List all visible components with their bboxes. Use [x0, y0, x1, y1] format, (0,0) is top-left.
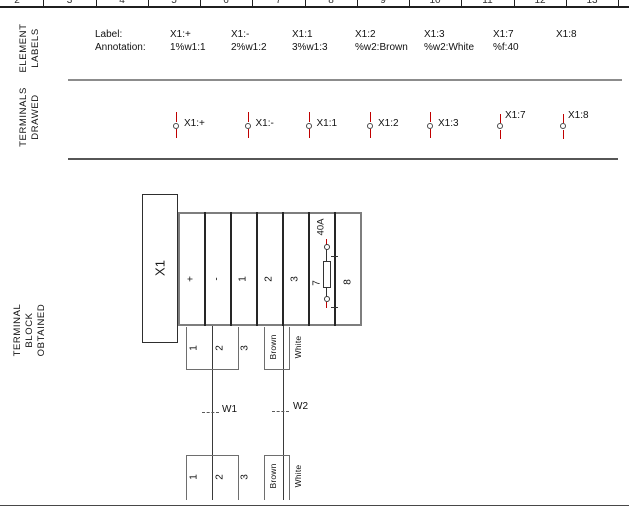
ruler-tick: [252, 0, 253, 8]
wire-label: 2: [215, 345, 226, 351]
terminal-label: X1:+: [184, 118, 205, 129]
row-header-element-labels: ELEMENT LABELS: [18, 23, 42, 72]
ruler-number: 12: [534, 0, 545, 6]
label-caption: Label:: [95, 28, 122, 41]
terminal-wire-bottom: [430, 129, 431, 138]
element-annotation: 2%w1:2: [231, 41, 267, 54]
terminal-wire-top: [563, 114, 564, 123]
terminal-wire-bottom: [248, 129, 249, 138]
ruler-number: 4: [119, 0, 125, 6]
element-label: X1:7: [493, 28, 519, 41]
terminal-wire-bottom: [370, 129, 371, 138]
element-annotation: 3%w1:3: [292, 41, 328, 54]
connection-tick: [331, 307, 338, 308]
element-label-column: X1:3 %w2:White: [424, 28, 474, 54]
terminal-circle-icon: [427, 123, 433, 129]
ruler-number: 11: [482, 0, 492, 6]
element-label: X1:-: [231, 28, 267, 41]
wire-label: Brown: [268, 463, 278, 488]
terminal-label: X1:-: [256, 118, 274, 129]
ruler-tick: [357, 0, 358, 8]
terminal-circle-icon: [306, 123, 312, 129]
wire-label: Brown: [268, 334, 278, 359]
ruler-number: 7: [276, 0, 282, 6]
connection-tick: [331, 256, 338, 257]
element-label-column: X1:+ 1%w1:1: [170, 28, 206, 54]
terminal-wire-bottom: [500, 130, 501, 139]
cell-label: 1: [238, 276, 249, 282]
ruler-tick: [148, 0, 149, 8]
element-label-column: X1:1 3%w1:3: [292, 28, 328, 54]
wire-label: White: [293, 336, 303, 359]
ruler-tick: [43, 0, 44, 8]
ruler-tick: [566, 0, 567, 8]
cell-divider: [308, 212, 310, 326]
cell-label: 3: [290, 276, 301, 282]
terminal-strip-name: X1: [153, 260, 168, 276]
terminal-label: X1:3: [438, 118, 459, 129]
fuse-terminal-circle-icon: [324, 244, 330, 250]
element-label: X1:8: [556, 28, 577, 41]
ruler-number: 13: [586, 0, 597, 6]
terminal-wire-bottom: [563, 130, 564, 139]
cell-label: -: [212, 277, 223, 280]
annotation-caption: Annotation:: [95, 41, 146, 54]
element-label-column: X1:2 %w2:Brown: [355, 28, 408, 54]
terminal-circle-icon: [173, 123, 179, 129]
wire-label: White: [293, 465, 303, 488]
cell-divider: [256, 212, 258, 326]
ruler-number: 5: [171, 0, 177, 6]
cell-label: 8: [343, 279, 354, 285]
section-divider: [68, 79, 622, 81]
cell-divider: [230, 212, 232, 326]
terminal-circle-icon: [560, 123, 566, 129]
cable-w2-dash: [272, 411, 289, 412]
terminal-wire-top: [430, 112, 431, 122]
wire-label: 3: [239, 345, 250, 351]
terminal-circle-icon: [245, 123, 251, 129]
ruler-number: 3: [67, 0, 73, 6]
ruler-tick: [409, 0, 410, 8]
ruler-tick: [305, 0, 306, 8]
terminal-wire-bottom: [309, 129, 310, 138]
fuse-body-icon: [323, 261, 331, 288]
cell-label: +: [186, 276, 197, 282]
ruler-tick: [461, 0, 462, 8]
element-annotation: 1%w1:1: [170, 41, 206, 54]
cell-divider: [334, 212, 336, 326]
element-annotation: %w2:White: [424, 41, 474, 54]
cell-divider: [282, 212, 284, 326]
ruler-number: 10: [429, 0, 440, 6]
row-header-terminals-drawed: TERMINALS DRAWED: [18, 87, 42, 147]
ruler-tick: [514, 0, 515, 8]
element-annotation: %f:40: [493, 41, 519, 54]
cell-label: 7: [312, 280, 323, 286]
drawing-canvas: 2 3 4 5 6 7 8 9 10 11 12 13 ELEMENT LABE…: [0, 0, 629, 517]
element-label: X1:2: [355, 28, 408, 41]
ruler-tick: [618, 0, 619, 8]
element-label: X1:+: [170, 28, 206, 41]
terminal-wire-top: [309, 112, 310, 122]
element-label: X1:3: [424, 28, 474, 41]
cable-w2-name: W2: [293, 401, 308, 412]
fuse-lead-bottom: [326, 302, 327, 308]
section-divider: [68, 158, 618, 160]
fuse-rating-label: 40A: [315, 219, 326, 236]
element-label: X1:1: [292, 28, 328, 41]
element-annotation: %w2:Brown: [355, 41, 408, 54]
terminal-circle-icon: [367, 123, 373, 129]
row-header-terminal-block: TERMINAL BLOCK OBTAINED: [12, 304, 48, 357]
terminal-label: X1:8: [568, 110, 589, 121]
terminal-wire-bottom: [176, 129, 177, 138]
wire-label: 3: [239, 474, 250, 480]
terminal-wire-top: [248, 112, 249, 122]
terminal-wire-top: [500, 114, 501, 123]
terminal-wire-top: [370, 112, 371, 122]
cable-w1-dash: [202, 412, 219, 413]
element-label-column: X1:- 2%w1:2: [231, 28, 267, 54]
wire-label: 1: [188, 474, 199, 480]
cable-w1-name: W1: [222, 404, 237, 415]
cell-divider: [204, 212, 206, 326]
terminal-label: X1:1: [317, 118, 338, 129]
terminal-label: X1:7: [505, 110, 526, 121]
wire-label: 2: [215, 474, 226, 480]
horizontal-ruler: 2 3 4 5 6 7 8 9 10 11 12 13: [0, 0, 629, 8]
ruler-number: 9: [380, 0, 386, 6]
ruler-number: 2: [14, 0, 20, 6]
terminal-circle-icon: [497, 123, 503, 129]
terminal-wire-top: [176, 112, 177, 122]
wire-label: 1: [188, 345, 199, 351]
element-label-column: X1:7 %f:40: [493, 28, 519, 54]
ruler-tick: [96, 0, 97, 8]
element-label-column: X1:8: [556, 28, 577, 41]
ruler-tick: [200, 0, 201, 8]
cell-label: 2: [264, 276, 275, 282]
ruler-number: 8: [328, 0, 334, 6]
page-bottom-border: [0, 505, 629, 506]
terminal-label: X1:2: [378, 118, 399, 129]
ruler-number: 6: [223, 0, 229, 6]
